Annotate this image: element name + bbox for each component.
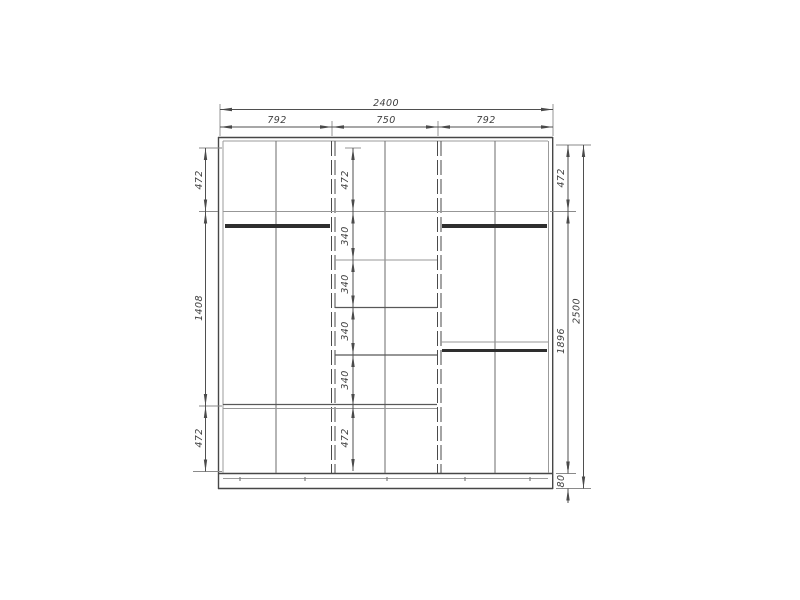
dim-label-right-section-width: 792 — [476, 115, 495, 126]
dim-middle-chain: 472 340 340 340 340 472 — [340, 148, 353, 471]
dimension-annotations: 2400 792 750 792 472 1408 472 — [193, 98, 591, 503]
dim-label-right-middle: 1896 — [556, 328, 567, 354]
dim-label-left-middle: 1408 — [194, 295, 205, 321]
middle-right-partition — [438, 141, 442, 473]
dim-label-total-height: 2500 — [572, 298, 583, 324]
dim-label-right-plinth: 80 — [556, 475, 567, 488]
dim-label-left-bottom: 472 — [194, 428, 205, 447]
dim-label-mid-1: 340 — [340, 226, 351, 245]
dim-label-mid-0: 472 — [340, 170, 351, 189]
dim-label-mid-4: 340 — [340, 370, 351, 389]
dim-label-right-top: 472 — [556, 168, 567, 187]
drawing-canvas: 2400 792 750 792 472 1408 472 — [0, 0, 800, 600]
wardrobe-technical-drawing: 2400 792 750 792 472 1408 472 — [0, 0, 800, 600]
dim-label-left-section-width: 792 — [267, 115, 286, 126]
extension-lines — [193, 104, 591, 489]
lower-shelf-left-middle — [223, 405, 437, 409]
dim-label-mid-3: 340 — [340, 321, 351, 340]
dim-label-total-width: 2400 — [373, 98, 399, 109]
dim-label-middle-section-width: 750 — [376, 115, 395, 126]
dim-total-width: 2400 — [220, 98, 553, 110]
dim-label-left-top: 472 — [194, 170, 205, 189]
dim-right-chain: 472 1896 80 — [556, 145, 568, 503]
wardrobe-body — [218, 137, 553, 489]
dim-section-widths: 792 750 792 — [220, 115, 553, 127]
dim-label-mid-5: 472 — [340, 428, 351, 447]
dim-left-chain: 472 1408 472 — [194, 148, 206, 472]
dim-total-height: 2500 — [572, 145, 584, 489]
left-middle-partition — [332, 141, 336, 473]
dim-label-mid-2: 340 — [340, 274, 351, 293]
